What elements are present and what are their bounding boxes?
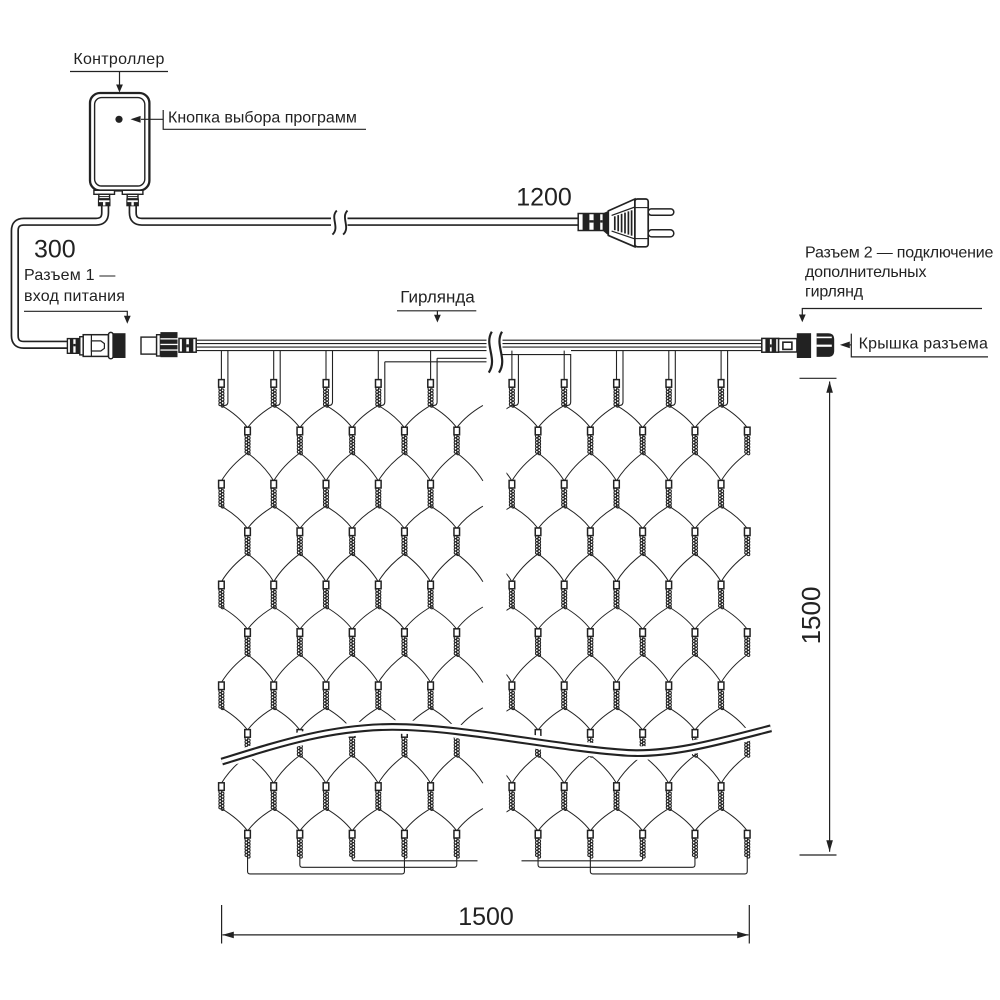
svg-text:300: 300 — [34, 236, 76, 264]
svg-text:дополнительных: дополнительных — [805, 264, 926, 281]
svg-text:Кнопка выбора программ: Кнопка выбора программ — [168, 109, 357, 126]
svg-text:Крышка разъема: Крышка разъема — [859, 336, 988, 353]
svg-text:Разъем 2 — подключение: Разъем 2 — подключение — [805, 244, 993, 261]
svg-text:1500: 1500 — [796, 587, 826, 645]
svg-text:Гирлянда: Гирлянда — [400, 287, 475, 306]
svg-text:вход питания: вход питания — [24, 288, 125, 305]
svg-text:гирлянд: гирлянд — [805, 283, 864, 300]
svg-text:1500: 1500 — [458, 903, 514, 931]
svg-text:1200: 1200 — [516, 184, 572, 212]
svg-text:Разъем 1 —: Разъем 1 — — [24, 267, 116, 284]
svg-text:Контроллер: Контроллер — [73, 51, 164, 68]
